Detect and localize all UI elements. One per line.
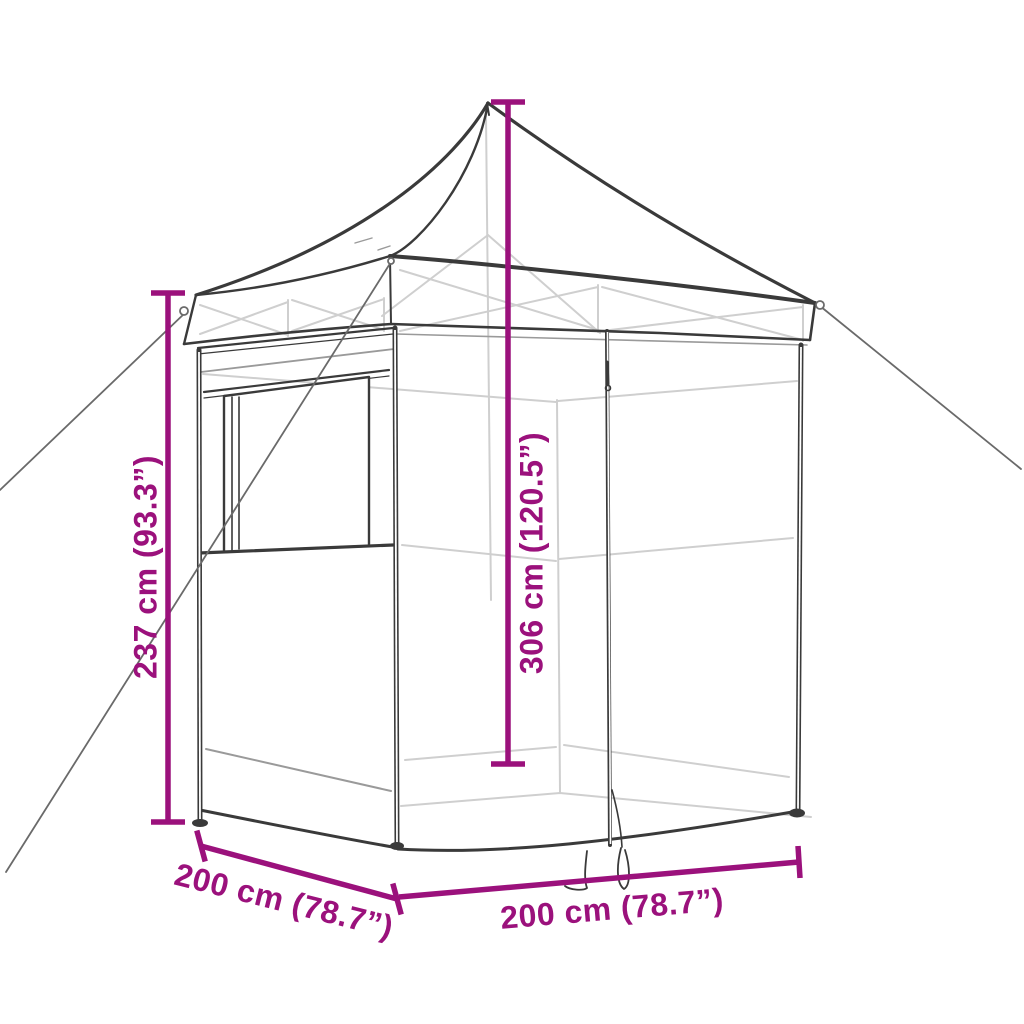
- tent-dimension-diagram: 237 cm (93.3”) 306 cm (120.5”) 200 cm (7…: [0, 0, 1024, 1024]
- rope-loop-left: [180, 307, 188, 315]
- valance-corner-front: [390, 257, 391, 324]
- dimension-label-height-side: 237 cm (93.3”): [128, 455, 165, 679]
- rope-loop-front: [388, 258, 394, 264]
- door-string-loop: [618, 848, 629, 889]
- right-foot: [789, 809, 805, 818]
- rear-left-foot: [192, 819, 208, 827]
- canopy-fill: [184, 103, 815, 344]
- guy-rope-right: [820, 306, 1021, 469]
- dimension-label-height-total: 306 cm (120.5”): [514, 432, 551, 674]
- window: [224, 377, 369, 552]
- zipper-pull: [607, 362, 608, 384]
- front-foot: [390, 842, 404, 850]
- rope-loop-right: [816, 301, 824, 309]
- dim-cap-width-right: [798, 846, 800, 878]
